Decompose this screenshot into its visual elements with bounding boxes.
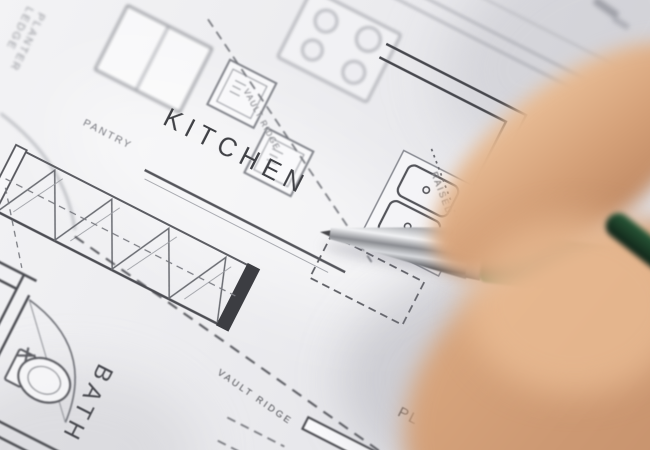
beam-dashes	[216, 417, 284, 450]
cooktop-outline	[277, 0, 401, 102]
toilet-icon	[3, 344, 79, 411]
dashed-connector	[0, 188, 51, 268]
closet-bifold-doors	[0, 145, 260, 332]
kitchen-wall-line	[145, 170, 345, 272]
floor-plan-photo: PLANTER LEDGE PANTRY KITCHEN VAULT RIDGE…	[0, 0, 650, 450]
island-counter	[95, 5, 212, 112]
